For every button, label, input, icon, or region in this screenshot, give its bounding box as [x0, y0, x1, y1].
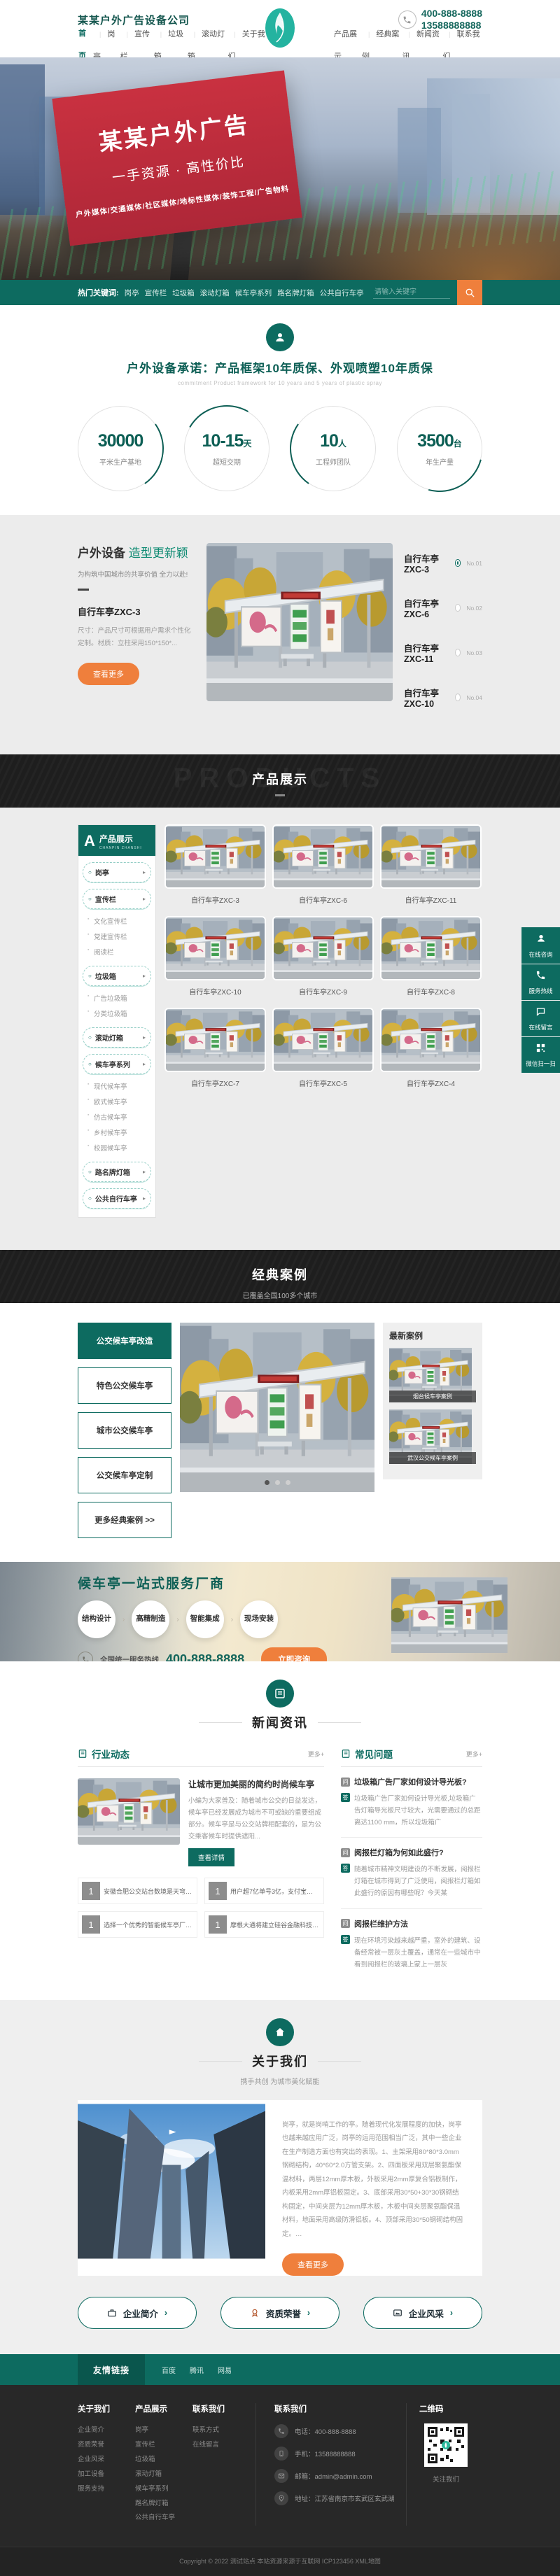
product-caption: 自行车亭ZXC-7	[164, 1078, 266, 1088]
sidebar-subitem[interactable]: 党建宣传栏	[78, 929, 155, 944]
faq-answer: 垃圾箱广告厂家如何设计导光板,垃圾箱广告灯箱导光板尺寸较大，光需要通过的总距离达…	[354, 1793, 482, 1829]
case-tab-3[interactable]: 公交候车亭定制	[78, 1457, 171, 1493]
news-item-title: 选择一个优秀的智能候车亭厂家可以从以上...	[104, 1920, 197, 1929]
service-hotline-button[interactable]: 服务热线	[521, 964, 560, 1000]
online-consult-button[interactable]: 在线咨询	[521, 927, 560, 964]
product-card[interactable]: 自行车亭ZXC-11	[380, 824, 482, 910]
news-list-item[interactable]: 1摩根大通将建立硅谷金融科技园区	[204, 1911, 324, 1938]
item-number: No.02	[466, 605, 482, 612]
contact-row: 电话：400-888-8888	[274, 2424, 406, 2438]
faq-question: 阅报栏灯箱为何如此盛行?	[354, 1847, 444, 1858]
contact-value: 邮箱：admin@admin.com	[295, 2471, 372, 2481]
faq-question: 垃圾箱广告厂家如何设计导光板?	[354, 1776, 467, 1787]
stat-suffix: 台	[454, 439, 462, 449]
stat-suffix: 天	[243, 439, 251, 449]
cases-banner-title: 经典案例	[0, 1250, 560, 1283]
billboard-pole	[170, 228, 193, 280]
more-link[interactable]: 更多+	[466, 1750, 482, 1759]
sidebar-subtitle: CHANPIN ZHANSHI	[99, 846, 142, 850]
news-section-title: 新闻资讯	[199, 1713, 361, 1731]
logo-icon	[264, 7, 296, 49]
qr-caption: 关注我们	[409, 2474, 482, 2484]
faq-answer: 随着城市精神文明建设的不断发展，阅报栏灯箱在城市得到了广泛使用，阅报栏灯箱如此盛…	[354, 1864, 482, 1899]
qr-title: 二维码	[409, 2403, 482, 2414]
product-card[interactable]: 自行车亭ZXC-4	[380, 1008, 482, 1093]
hot-keyword[interactable]: 公共自行车亭	[320, 288, 364, 298]
equipment-title: 户外设备	[78, 547, 125, 560]
menu-label: 垃圾箱	[95, 971, 116, 981]
footer-col-title: 产品展示	[135, 2403, 192, 2414]
sidebar-subitem[interactable]: 乡村候车亭	[78, 1125, 155, 1140]
sidebar-subitem[interactable]: 阅读栏	[78, 944, 155, 959]
equipment-list-item[interactable]: 自行车亭ZXC-10 No.04	[404, 686, 482, 709]
friend-link-tencent[interactable]: 腾讯	[190, 2365, 204, 2375]
online-message-button[interactable]: 在线留言	[521, 1001, 560, 1036]
sidebar-subitem[interactable]: 欧式候车亭	[78, 1094, 155, 1109]
sidebar-subitems: 广告垃圾箱 分类垃圾箱	[78, 990, 155, 1021]
case-tab-0[interactable]: 公交候车亭改造	[78, 1323, 171, 1359]
equipment-title-accent: 造型更新颖	[129, 547, 188, 560]
product-caption: 自行车亭ZXC-11	[380, 894, 482, 905]
equipment-product-desc: 尺寸：产品尺寸可根据用户需求个性化定制。材质：立柱采用150*150*...	[78, 625, 195, 650]
footer-contact-title: 联系我们	[274, 2403, 406, 2414]
latest-case-thumb[interactable]: 烟台候车亭案例	[389, 1348, 476, 1402]
honors-button[interactable]: 资质荣誉 ›	[220, 2297, 339, 2329]
search-bar: 热门关键词: 岗亭 宣传栏 垃圾箱 滚动灯箱 候车亭系列 路名牌灯箱 公共自行车…	[0, 280, 560, 305]
page: 某某户外广告设备公司 400-888-8888 13588888888	[0, 0, 560, 2576]
carousel-dot[interactable]	[275, 1480, 280, 1485]
products-banner: PRODUCTS 产品展示	[0, 754, 560, 808]
item-number: No.01	[466, 560, 482, 567]
case-carousel[interactable]	[180, 1323, 374, 1492]
answer-icon: 答	[341, 1935, 350, 1944]
chat-icon	[535, 1006, 546, 1017]
stat-label: 年生产量	[426, 456, 454, 467]
product-card[interactable]: 自行车亭ZXC-9	[272, 916, 374, 1001]
footer-col-title: 联系我们	[192, 2403, 250, 2414]
radio-icon[interactable]	[455, 604, 461, 612]
stat-value: 3500	[417, 431, 454, 451]
faq-column: 常见问题 更多+ 问垃圾箱广告厂家如何设计导光板? 答垃圾箱广告厂家如何设计导光…	[341, 1747, 482, 1979]
logo	[264, 7, 296, 52]
mail-icon	[274, 2469, 288, 2483]
carousel-dot[interactable]	[286, 1480, 290, 1485]
equipment-product-image[interactable]	[206, 543, 393, 701]
medal-icon	[250, 2308, 260, 2318]
product-caption: 自行车亭ZXC-3	[164, 894, 266, 905]
hot-keyword[interactable]: 路名牌灯箱	[277, 288, 314, 298]
stat-suffix: 人	[338, 439, 346, 449]
answer-icon: 答	[341, 1793, 350, 1802]
stat-label: 工程师团队	[316, 456, 351, 467]
product-card[interactable]: 自行车亭ZXC-6	[272, 824, 374, 910]
friend-links-bar: 友情链接 百度 腾讯 网易	[0, 2354, 560, 2385]
equipment-product-name: 自行车亭ZXC-3	[78, 605, 195, 618]
item-name: 自行车亭ZXC-10	[404, 686, 449, 709]
industry-news-title: 行业动态	[92, 1747, 129, 1761]
more-link[interactable]: 更多+	[308, 1750, 324, 1759]
sidebar-item-xuanchuanlan[interactable]: 宣传栏	[83, 889, 151, 909]
stat-circle: 30000 平米生产基地	[78, 406, 163, 491]
sidebar-item-lajixiang[interactable]: 垃圾箱	[83, 966, 151, 986]
footer-link[interactable]: 联系方式	[192, 2423, 250, 2438]
hot-keywords: 岗亭 宣传栏 垃圾箱 滚动灯箱 候车亭系列 路名牌灯箱 公共自行车亭	[125, 288, 364, 298]
news-item-title: 用户超7亿单号3亿，支付宝如何令对手换...	[230, 1887, 323, 1896]
sidebar-subitem[interactable]: 文化宣传栏	[78, 913, 155, 929]
company-profile-button[interactable]: 企业简介 ›	[78, 2297, 197, 2329]
mobile-icon	[274, 2447, 288, 2461]
product-card[interactable]: 自行车亭ZXC-10	[164, 916, 266, 1001]
service-steps: 结构设计› 高精制造› 智能集成› 现场安装	[78, 1600, 482, 1638]
answer-icon: 答	[341, 1864, 350, 1873]
menu-label: 滚动灯箱	[95, 1032, 123, 1043]
promise-title: 户外设备承诺：产品框架10年质保、外观喷塑10年质保	[0, 358, 560, 376]
floating-contact-widget: 在线咨询 服务热线 在线留言 微信扫一扫	[521, 927, 560, 1074]
contact-row: 手机：13588888888	[274, 2447, 406, 2461]
product-card[interactable]: 自行车亭ZXC-7	[164, 1008, 266, 1093]
contact-value: 手机：13588888888	[295, 2449, 356, 2458]
product-card[interactable]: 自行车亭ZXC-8	[380, 916, 482, 1001]
carousel-dot[interactable]	[265, 1480, 269, 1485]
stat-value: 10	[320, 431, 338, 451]
case-tab-1[interactable]: 特色公交候车亭	[78, 1367, 171, 1404]
sidebar-subitems: 现代候车亭 欧式候车亭 仿古候车亭 乡村候车亭 校园候车亭	[78, 1078, 155, 1155]
about-more-button[interactable]: 查看更多	[282, 2253, 344, 2276]
contact-value: 地址：江苏省南京市玄武区玄武湖	[295, 2493, 395, 2503]
search-input[interactable]	[373, 286, 450, 299]
footer-link[interactable]: 路名牌灯箱	[135, 2497, 192, 2512]
footer-link[interactable]: 企业简介	[78, 2423, 135, 2438]
float-label: 在线咨询	[523, 950, 559, 959]
company-gallery-button[interactable]: 企业风采 ›	[363, 2297, 482, 2329]
about-link-label: 企业简介	[123, 2307, 158, 2320]
footer-col-about: 关于我们 企业简介 资质荣誉 企业风采 加工设备 服务支持	[78, 2403, 135, 2526]
question-icon: 问	[341, 1778, 350, 1787]
view-more-button[interactable]: 查看更多	[78, 663, 139, 685]
phone-icon	[274, 2424, 288, 2438]
latest-cases-title: 最新案例	[389, 1330, 476, 1342]
phone-icon	[535, 970, 546, 980]
hot-keyword[interactable]: 垃圾箱	[172, 288, 195, 298]
wechat-qr-button[interactable]: 微信扫一扫	[521, 1037, 560, 1073]
footer-link[interactable]: 服务支持	[78, 2482, 135, 2497]
news-number: 1	[209, 1915, 227, 1934]
footer-col-title: 关于我们	[78, 2403, 135, 2414]
float-label: 微信扫一扫	[523, 1060, 559, 1068]
product-caption: 自行车亭ZXC-5	[272, 1078, 374, 1088]
qr-code	[424, 2423, 468, 2467]
radio-icon[interactable]	[455, 694, 461, 701]
item-name: 自行车亭ZXC-6	[404, 596, 449, 619]
service-step: 结构设计	[78, 1600, 115, 1638]
footer-link[interactable]: 公共自行车亭	[135, 2511, 192, 2526]
news-number: 1	[82, 1882, 100, 1900]
sidebar-item-houchetingxilie[interactable]: 候车亭系列	[83, 1054, 151, 1074]
divider	[275, 794, 285, 796]
cases-banner-subtitle: 已覆盖全国100多个城市	[0, 1290, 560, 1300]
chevron-right-icon: ›	[307, 2308, 310, 2318]
faq-title: 常见问题	[355, 1747, 393, 1761]
hot-keyword[interactable]: 岗亭	[125, 288, 139, 298]
thumb-caption: 烟台候车亭案例	[389, 1391, 476, 1402]
menu-label: 公共自行车亭	[95, 1193, 137, 1204]
equipment-list-item[interactable]: 自行车亭ZXC-6 No.02	[404, 596, 482, 619]
float-label: 服务热线	[523, 987, 559, 995]
menu-label: 宣传栏	[95, 894, 116, 904]
products-section: A 产品展示 CHANPIN ZHANSHI 岗亭 宣传栏 文化宣传栏 党建宣传…	[0, 808, 560, 1250]
chevron-right-icon: ›	[164, 2308, 167, 2318]
cases-banner: 经典案例 已覆盖全国100多个城市	[0, 1250, 560, 1303]
stat-value: 10-15	[202, 431, 244, 451]
item-number: No.03	[466, 649, 482, 656]
news-list-item[interactable]: 1选择一个优秀的智能候车亭厂家可以从以上...	[78, 1911, 197, 1938]
briefcase-icon	[107, 2308, 117, 2318]
promise-subtitle-en: commitment Product framework for 10 year…	[0, 380, 560, 386]
equipment-section: 户外设备 造型更新颖 为构筑中国城市的共享价值 全力以赴! 自行车亭ZXC-3 …	[0, 515, 560, 754]
friend-links: 百度 腾讯 网易	[162, 2365, 232, 2375]
phone-number-1: 400-888-8888	[421, 8, 482, 20]
faq-item[interactable]: 问阅报栏灯箱为何如此盛行? 答随着城市精神文明建设的不断发展，阅报栏灯箱在城市得…	[341, 1838, 482, 1908]
detail-button[interactable]: 查看详情	[188, 1848, 234, 1866]
item-number: No.04	[466, 694, 482, 701]
product-caption: 自行车亭ZXC-6	[272, 894, 374, 905]
service-step: 智能集成	[186, 1600, 224, 1638]
news-list: 1安徽合肥公交站台数境是天穹还是人间 1用户超7亿单号3亿，支付宝如何令对手换.…	[78, 1878, 324, 1938]
equipment-list-item[interactable]: 自行车亭ZXC-11 No.03	[404, 641, 482, 664]
faq-question: 阅报栏维护方法	[354, 1918, 408, 1929]
footer-link[interactable]: 候车亭系列	[135, 2482, 192, 2497]
more-cases-button[interactable]: 更多经典案例 >>	[78, 1502, 171, 1538]
friend-link-baidu[interactable]: 百度	[162, 2365, 176, 2375]
sidebar-subitem[interactable]: 现代候车亭	[78, 1078, 155, 1094]
person-icon	[266, 323, 294, 351]
consult-now-button[interactable]: 立即咨询	[261, 1647, 327, 1661]
divider	[78, 589, 89, 591]
equipment-subtitle: 为构筑中国城市的共享价值 全力以赴!	[78, 569, 195, 579]
float-label: 在线留言	[523, 1023, 559, 1032]
contact-value: 电话：400-888-8888	[295, 2426, 356, 2436]
footer-link[interactable]: 企业风采	[78, 2453, 135, 2468]
sidebar-item-gundongdengxiang[interactable]: 滚动灯箱	[83, 1027, 151, 1048]
menu-label: 路名牌灯箱	[95, 1167, 130, 1177]
phone-icon	[78, 1652, 93, 1661]
cases-section: 公交候车亭改造 特色公交候车亭 城市公交候车亭 公交候车亭定制 更多经典案例 >…	[0, 1303, 560, 1562]
sidebar-item-gangting[interactable]: 岗亭	[83, 862, 151, 882]
item-name: 自行车亭ZXC-3	[404, 551, 449, 575]
header: 某某户外广告设备公司 400-888-8888 13588888888	[0, 0, 560, 57]
sidebar-subitem[interactable]: 校园候车亭	[78, 1140, 155, 1155]
featured-news[interactable]: 让城市更加美丽的简约时尚候车亭 小编为大家普及：随着城市公交的日益发达，候车亭已…	[78, 1778, 324, 1866]
search-button[interactable]	[457, 280, 482, 305]
footer: 关于我们 企业简介 资质荣誉 企业风采 加工设备 服务支持 产品展示 岗亭 宣传…	[0, 2385, 560, 2547]
equipment-product-list: 自行车亭ZXC-3 No.01 自行车亭ZXC-6 No.02 自行车亭ZXC-…	[404, 543, 482, 731]
sidebar-item-lumingpaidengxiang[interactable]: 路名牌灯箱	[83, 1162, 151, 1182]
footer-link[interactable]: 岗亭	[135, 2423, 192, 2438]
about-link-label: 企业风采	[409, 2307, 444, 2320]
footer-contact: 联系我们 电话：400-888-8888 手机：13588888888 邮箱：a…	[255, 2403, 407, 2526]
stat-circle: 10-15天 超短交期	[184, 406, 269, 491]
equipment-list-item[interactable]: 自行车亭ZXC-3 No.01	[404, 551, 482, 575]
news-list-item[interactable]: 1用户超7亿单号3亿，支付宝如何令对手换...	[204, 1878, 324, 1904]
news-number: 1	[209, 1882, 227, 1900]
sidebar-subitem[interactable]: 分类垃圾箱	[78, 1006, 155, 1021]
qr-icon	[535, 1043, 546, 1053]
location-icon	[274, 2491, 288, 2505]
sidebar-subitem[interactable]: 广告垃圾箱	[78, 990, 155, 1006]
sidebar-subitems: 文化宣传栏 党建宣传栏 阅读栏	[78, 913, 155, 959]
doc-icon	[78, 1749, 87, 1759]
footer-col-products: 产品展示 岗亭 宣传栏 垃圾箱 滚动灯箱 候车亭系列 路名牌灯箱 公共自行车亭	[135, 2403, 192, 2526]
news-number: 1	[82, 1915, 100, 1934]
search-icon	[465, 288, 475, 298]
about-image	[78, 2100, 265, 2262]
promise-section: 户外设备承诺：产品框架10年质保、外观喷塑10年质保 commitment Pr…	[0, 305, 560, 515]
products-banner-title: 产品展示	[0, 754, 560, 788]
service-banner: 候车亭一站式服务厂商 结构设计› 高精制造› 智能集成› 现场安装 全国统一服务…	[0, 1562, 560, 1661]
latest-cases-panel: 最新案例 烟台候车亭案例 武汉公交候车亭案例	[383, 1323, 482, 1479]
stat-label: 平米生产基地	[99, 456, 141, 467]
contact-row: 邮箱：admin@admin.com	[274, 2469, 406, 2483]
service-title: 候车亭一站式服务厂商	[78, 1573, 482, 1592]
home-icon	[266, 2018, 294, 2046]
sidebar-subitem[interactable]: 仿古候车亭	[78, 1109, 155, 1125]
contact-row: 地址：江苏省南京市玄武区玄武湖	[274, 2491, 406, 2505]
about-section-title: 关于我们	[199, 2052, 361, 2070]
faq-item[interactable]: 问垃圾箱广告厂家如何设计导光板? 答垃圾箱广告厂家如何设计导光板,垃圾箱广告灯箱…	[341, 1767, 482, 1838]
hot-keyword[interactable]: 滚动灯箱	[200, 288, 230, 298]
about-card: 岗亭，就是岗哨工作的亭。随着现代化发展程度的加快，岗亭也越来越应用广泛，岗亭的运…	[78, 2100, 482, 2276]
hotline-label: 全国统一服务热线	[100, 1654, 159, 1662]
news-item-title: 摩根大通将建立硅谷金融科技园区	[230, 1920, 323, 1929]
question-icon: 问	[341, 1919, 350, 1928]
about-section: 关于我们 携手共创 为城市美化赋能 岗亭，就是岗哨工作的亭。随着现代化发展程度的…	[0, 2000, 560, 2354]
radio-icon[interactable]	[455, 559, 461, 567]
footer-link[interactable]: 资质荣誉	[78, 2438, 135, 2453]
footer-link[interactable]: 宣传栏	[135, 2438, 192, 2453]
radio-icon[interactable]	[455, 649, 461, 656]
product-grid: 自行车亭ZXC-3 自行车亭ZXC-6 自行车亭ZXC-11 自行车亭ZXC-1…	[164, 824, 482, 1093]
sidebar-item-gonggongzixingcheting[interactable]: 公共自行车亭	[83, 1188, 151, 1209]
product-card[interactable]: 自行车亭ZXC-3	[164, 824, 266, 910]
product-caption: 自行车亭ZXC-9	[272, 986, 374, 997]
item-name: 自行车亭ZXC-11	[404, 641, 449, 664]
products-sidebar: A 产品展示 CHANPIN ZHANSHI 岗亭 宣传栏 文化宣传栏 党建宣传…	[78, 824, 156, 1218]
faq-answer: 现在环境污染越来越严重，室外的建筑、设备经常被一层灰土覆盖，通常在一些城市中看到…	[354, 1935, 482, 1971]
stat-circle: 10人 工程师团队	[290, 406, 376, 491]
stat-circle: 3500台 年生产量	[397, 406, 482, 491]
carousel-dots	[180, 1480, 374, 1485]
hero-building	[0, 64, 45, 215]
product-caption: 自行车亭ZXC-4	[380, 1078, 482, 1088]
promise-stats: 30000 平米生产基地 10-15天 超短交期 10人 工程师团队 3500台…	[78, 406, 482, 491]
sidebar-header: A 产品展示 CHANPIN ZHANSHI	[78, 825, 155, 856]
news-list-item[interactable]: 1安徽合肥公交站台数境是天穹还是人间	[78, 1878, 197, 1904]
about-text: 岗亭，就是岗哨工作的亭。随着现代化发展程度的加快，岗亭也越来越应用广泛，岗亭的运…	[282, 2118, 465, 2241]
featured-news-title: 让城市更加美丽的简约时尚候车亭	[188, 1778, 324, 1790]
product-card[interactable]: 自行车亭ZXC-5	[272, 1008, 374, 1093]
copyright-bar: Copyright © 2022 测试站点 本站资源来源于互联网 ICP1234…	[0, 2547, 560, 2576]
industry-news-column: 行业动态 更多+ 让城市更加美丽的简约时尚候车亭 小编为大家普及：随着城市公交的…	[78, 1747, 324, 1979]
cases-menu: 公交候车亭改造 特色公交候车亭 城市公交候车亭 公交候车亭定制 更多经典案例 >…	[78, 1323, 171, 1538]
sidebar-badge: A	[84, 832, 95, 850]
thumb-caption: 武汉公交候车亭案例	[389, 1452, 476, 1464]
product-caption: 自行车亭ZXC-10	[164, 986, 266, 997]
footer-link[interactable]: 在线留言	[192, 2438, 250, 2453]
hero-billboard: 某某户外广告 一手资源 · 高性价比 户外媒体/交通媒体/社区媒体/地标性媒体/…	[52, 70, 302, 246]
about-link-label: 资质荣誉	[266, 2307, 301, 2320]
friend-link-netease[interactable]: 网易	[218, 2365, 232, 2375]
service-step: 现场安装	[240, 1600, 278, 1638]
footer-link[interactable]: 滚动灯箱	[135, 2468, 192, 2482]
about-links: 企业简介 › 资质荣誉 › 企业风采 ›	[78, 2297, 482, 2329]
news-section: 新闻资讯 行业动态 更多+ 让城市更加美丽的简约时尚候车亭 小编为大家普及：随着…	[0, 1661, 560, 2000]
footer-link[interactable]: 加工设备	[78, 2468, 135, 2482]
hero-sunset-glow	[294, 189, 560, 280]
hot-keyword[interactable]: 候车亭系列	[235, 288, 272, 298]
chevron-right-icon: ›	[450, 2308, 453, 2318]
about-section-subtitle: 携手共创 为城市美化赋能	[0, 2076, 560, 2086]
news-item-title: 安徽合肥公交站台数境是天穹还是人间	[104, 1887, 197, 1896]
stat-value: 30000	[98, 431, 143, 451]
case-tab-2[interactable]: 城市公交候车亭	[78, 1412, 171, 1449]
question-icon: 问	[341, 1848, 350, 1857]
sidebar-title: 产品展示	[99, 833, 142, 845]
faq-item[interactable]: 问阅报栏维护方法 答现在环境污染越来越严重，室外的建筑、设备经常被一层灰土覆盖，…	[341, 1909, 482, 1979]
footer-col-contact-links: 联系我们 联系方式 在线留言	[192, 2403, 250, 2526]
product-caption: 自行车亭ZXC-8	[380, 986, 482, 997]
hero-banner[interactable]: 某某户外广告 一手资源 · 高性价比 户外媒体/交通媒体/社区媒体/地标性媒体/…	[0, 57, 560, 280]
footer-qr: 二维码	[407, 2403, 482, 2526]
headset-icon	[535, 933, 547, 944]
stat-label: 超短交期	[213, 456, 241, 467]
menu-label: 候车亭系列	[95, 1059, 130, 1069]
hotline-number: 400-888-8888	[166, 1652, 244, 1662]
latest-case-thumb[interactable]: 武汉公交候车亭案例	[389, 1409, 476, 1464]
image-icon	[393, 2308, 402, 2318]
news-icon	[266, 1680, 294, 1708]
hot-keywords-label: 热门关键词:	[78, 287, 119, 298]
doc-icon	[341, 1749, 351, 1759]
hot-keyword[interactable]: 宣传栏	[145, 288, 167, 298]
featured-news-excerpt: 小编为大家普及：随着城市公交的日益发达，候车亭已经发展成为城市不可或缺的重要组成…	[188, 1795, 324, 1843]
service-step: 高精制造	[132, 1600, 169, 1638]
friend-links-label: 友情链接	[78, 2354, 145, 2385]
footer-link[interactable]: 垃圾箱	[135, 2453, 192, 2468]
menu-label: 岗亭	[95, 867, 109, 878]
